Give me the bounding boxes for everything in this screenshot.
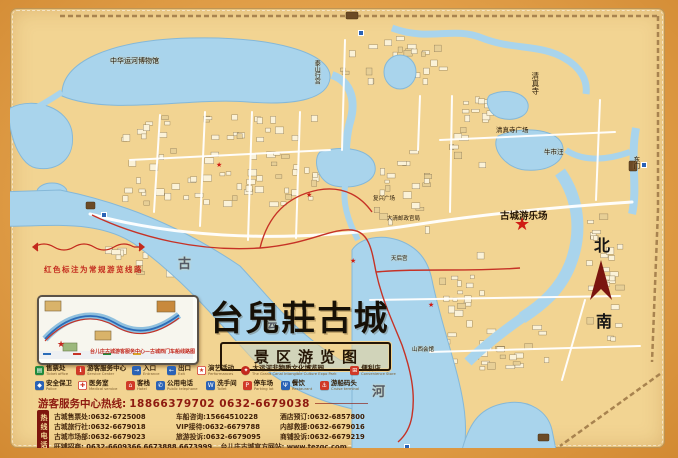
route-note-text: 红色标注为常规游览线路 [44,264,143,275]
map-canvas: 中华运河博物馆泰山行宫清真寺清真寺广场牛市汪东门古城游乐场复兴广场大清邮政官局天… [10,8,665,448]
phone-entry: 酒店预订:0632-6857800 [280,411,365,421]
toilet-icon: W [206,381,215,390]
convenience-store-icon: ⊞ [350,366,359,375]
phone-label: 内部救援: [280,423,310,431]
entrance-marker-icon [358,30,364,36]
phone-entry: 古城售票处:0632-6725008 [54,411,146,421]
route-note-arrow [33,243,144,251]
performance-icon: ★ [197,366,206,375]
legend-label-en: Exit [178,372,190,376]
legend-label-en: Restaurant [292,387,312,391]
restaurant-icon: Ψ [281,381,290,390]
legend-item-public-phone: ✆公用电话Public telephone [156,380,200,391]
legend-item-performance: ★演艺活动Performances [197,365,235,376]
legend-item-ticket-office: ▤售票处Ticket office [35,365,70,376]
pond-west [10,103,73,168]
lake-northwest [62,38,330,106]
pond-northeast [384,55,416,89]
phone-directory: 古城售票处:0632-6725008车船咨询:15664510228酒店预订:0… [54,411,376,448]
performance-star-icon: ★ [216,162,222,169]
phone-number: 0632-6679095 [206,433,261,441]
legend-label-en: Toilet [217,387,235,391]
phone-entry: 车船咨询:15664510228 [176,411,258,421]
phone-entry: 古城市场部:0632-6679023 [54,431,146,441]
entrance-marker-icon [101,212,107,218]
parking-icon: P [243,381,252,390]
legend-label-en: Public telephone [167,387,198,391]
map-title: 台兒莊古城 [182,291,417,340]
phone-entry: 商铺投诉:0632-6679219 [280,431,365,441]
phone-entry: 古城旅行社:0632-6679018 [54,421,146,431]
phone-label: 酒店预订: [280,413,310,421]
legend-item-cruise: ⚓游船码头Cruise terminal [320,380,362,391]
legend: ▤售票处Ticket officeℹ游客服务中心Service Center→入… [35,365,369,395]
phone-number: 0632-6679018 [91,423,146,431]
hotel-icon: ⌂ [126,381,135,390]
phone-number: 0632-6609366 6673888 6673999 [86,443,212,448]
legend-item-toilet: W洗手间Toilet [206,380,237,391]
compass-south-label: 南 [596,308,612,332]
compass-north-label: 北 [594,232,610,256]
phone-label: 旺铺招商: [54,443,84,448]
inset-caption: 台儿庄古城游客服务中心—古城西门车船线路图 [90,348,195,355]
phone-number: 15664510228 [206,413,258,421]
service-hotline: 游客服务中心热线: 18866379702 0632-6679038 [38,396,368,411]
phone-number: 0632-6725008 [91,413,146,421]
phone-number: 0632-6857800 [310,413,365,421]
phone-number: 0632-6679023 [91,433,146,441]
entrance-marker-icon [641,162,647,168]
phone-entry: 旅游投诉:0632-6679095 [176,431,261,441]
legend-label-en: Service Center [87,372,123,376]
phone-label: 旅游投诉: [176,433,206,441]
expo-park-icon: ✦ [241,366,250,375]
performance-star-icon: ★ [350,258,356,265]
phone-label: 古城售票处: [54,413,91,421]
phone-number: 0632-6679788 [205,423,260,431]
legend-item-restaurant: Ψ餐饮Restaurant [281,380,314,391]
legend-label-en: Police [46,387,70,391]
exit-icon: ← [167,366,176,375]
cruise-icon: ⚓ [320,381,329,390]
legend-item-service-center: ℹ游客服务中心Service Center [76,365,126,376]
entrance-icon: → [132,366,141,375]
phone-label: 商铺投诉: [280,433,310,441]
medical-icon: ✚ [78,381,87,390]
legend-row-1: ▤售票处Ticket officeℹ游客服务中心Service Center→入… [35,365,369,378]
legend-item-expo-park: ✦大运河非物质文化博览园The Grand Canal Intangible C… [241,365,344,376]
legend-label-en: Hotel [137,387,149,391]
performance-star-icon: ★ [428,302,434,309]
hotline-rule [315,403,368,404]
legend-label-en: Ticket office [46,372,68,376]
legend-label-en: Performances [208,372,233,376]
service-center-icon: ℹ [76,366,85,375]
hotline-numbers: 18866379702 0632-6679038 [129,398,310,410]
legend-item-exit: ←出口Exit [167,365,191,376]
poster-frame: 中华运河博物馆泰山行宫清真寺清真寺广场牛市汪东门古城游乐场复兴广场大清邮政官局天… [0,0,678,458]
website-url: www.tezgc.com [287,443,347,448]
phone-label: VIP接待: [176,423,205,431]
phone-label: 古城旅行社: [54,423,91,431]
phone-label: 古城市场部: [54,433,91,441]
legend-item-security: ◆安全保卫Police [35,380,72,391]
ticket-office-icon: ▤ [35,366,44,375]
hotline-side-tab: 热线电话 [37,410,49,448]
legend-label-en: Convenience Store [361,372,396,376]
legend-item-parking: P停车场Parking lot [243,380,275,391]
legend-label-en: The Grand Canal Intangible Culture Expo … [252,372,336,376]
legend-item-entrance: →入口Entrance [132,365,161,376]
legend-item-medical: ✚医务室Medical service [78,380,120,391]
legend-label-en: Cruise terminal [331,387,359,391]
amusement-star-icon: ★ [514,216,530,234]
legend-item-hotel: ⌂客栈Hotel [126,380,150,391]
legend-label-en: Medical service [89,387,117,391]
legend-label-en: Parking lot [254,387,274,391]
legend-label-en: Entrance [143,372,159,376]
website-label: 台儿庄古城官方网站: [220,443,284,448]
phone-entry: VIP接待:0632-6679788 [176,421,260,431]
legend-item-convenience-store: ⊞便利店Convenience Store [350,365,399,376]
entrance-marker-icon [404,444,410,448]
phone-number: 0632-6679016 [310,423,365,431]
legend-row-2: ◆安全保卫Police✚医务室Medical service⌂客栈Hotel✆公… [35,380,369,393]
phone-entry: 内部救援:0632-6679016 [280,421,365,431]
svg-text:★: ★ [57,340,65,350]
phone-label: 车船咨询: [176,413,206,421]
performance-star-icon: ★ [306,192,312,199]
phone-number: 0632-6679219 [310,433,365,441]
hotline-label: 游客服务中心热线: [38,396,126,411]
inset-route-map: ★ 台儿庄古城游客服务中心—古城西门车船线路图 [37,295,199,365]
security-icon: ◆ [35,381,44,390]
public-phone-icon: ✆ [156,381,165,390]
